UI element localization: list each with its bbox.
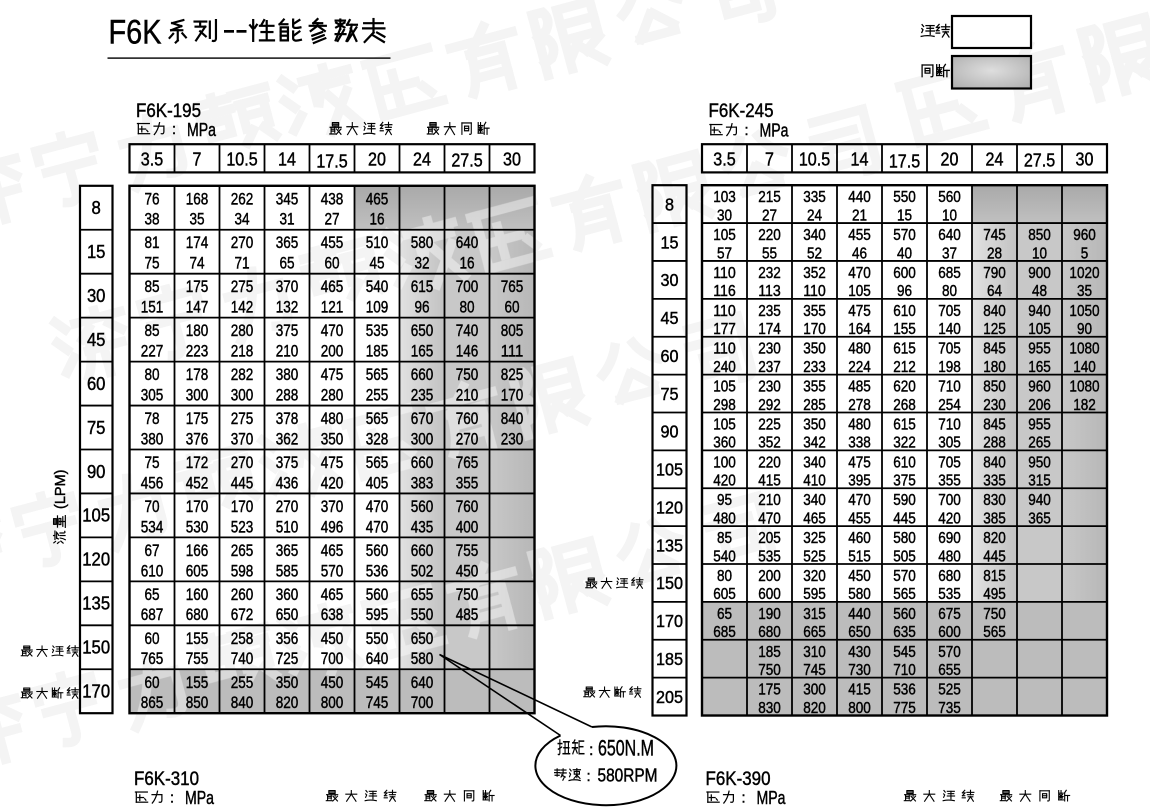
svg-text:380: 380 — [276, 366, 299, 384]
svg-text:370: 370 — [321, 498, 344, 516]
svg-text:35: 35 — [189, 211, 204, 229]
svg-text:90: 90 — [1077, 321, 1092, 338]
svg-text:120: 120 — [656, 498, 683, 518]
svg-text:710: 710 — [893, 662, 916, 679]
svg-text:175: 175 — [758, 682, 781, 699]
svg-text:121: 121 — [321, 299, 344, 317]
svg-text:605: 605 — [186, 562, 209, 580]
svg-text:450: 450 — [321, 674, 344, 692]
svg-text:350: 350 — [276, 674, 299, 692]
svg-text:71: 71 — [234, 255, 249, 273]
svg-text:570: 570 — [893, 227, 916, 244]
svg-text:755: 755 — [456, 542, 479, 560]
svg-text:170: 170 — [231, 498, 254, 516]
svg-text:270: 270 — [456, 430, 479, 448]
svg-text:640: 640 — [456, 234, 479, 252]
svg-text:550: 550 — [366, 630, 389, 648]
svg-text:580RPM: 580RPM — [598, 766, 658, 786]
svg-text:465: 465 — [366, 190, 389, 208]
svg-text:3.5: 3.5 — [713, 148, 735, 169]
svg-text:940: 940 — [1028, 492, 1051, 509]
svg-text:105: 105 — [713, 379, 736, 396]
svg-text:F6K-195: F6K-195 — [136, 100, 201, 122]
svg-text:465: 465 — [321, 586, 344, 604]
svg-text:665: 665 — [803, 624, 826, 641]
svg-text:48: 48 — [1032, 283, 1047, 300]
svg-text:356: 356 — [276, 630, 299, 648]
svg-text:170: 170 — [501, 387, 524, 405]
svg-text:1050: 1050 — [1069, 303, 1099, 320]
svg-text:7: 7 — [765, 148, 774, 169]
svg-text:370: 370 — [276, 278, 299, 296]
svg-text:438: 438 — [321, 190, 344, 208]
svg-text:210: 210 — [758, 492, 781, 509]
svg-text:5: 5 — [1081, 245, 1089, 262]
svg-text:375: 375 — [276, 454, 299, 472]
svg-text:322: 322 — [893, 435, 916, 452]
svg-text:95: 95 — [717, 492, 732, 509]
svg-text:27: 27 — [762, 207, 777, 224]
svg-text:76: 76 — [144, 190, 159, 208]
svg-text:342: 342 — [803, 435, 826, 452]
svg-text:105: 105 — [713, 417, 736, 434]
svg-text:125: 125 — [983, 321, 1006, 338]
svg-text:34: 34 — [234, 211, 249, 229]
svg-text:28: 28 — [987, 245, 1002, 262]
svg-text:700: 700 — [938, 492, 961, 509]
svg-text:27: 27 — [324, 211, 339, 229]
svg-text:254: 254 — [938, 397, 961, 414]
svg-text:495: 495 — [983, 586, 1006, 603]
svg-text:17.5: 17.5 — [316, 150, 347, 171]
svg-text:705: 705 — [938, 341, 961, 358]
svg-text:328: 328 — [366, 430, 389, 448]
svg-text:220: 220 — [758, 227, 781, 244]
svg-text:30: 30 — [87, 286, 106, 306]
svg-text:705: 705 — [938, 454, 961, 471]
svg-text:60: 60 — [504, 299, 519, 317]
svg-text:845: 845 — [983, 417, 1006, 434]
svg-text:350: 350 — [803, 341, 826, 358]
svg-text:113: 113 — [758, 283, 781, 300]
svg-text:30: 30 — [661, 270, 679, 290]
svg-text:80: 80 — [942, 283, 957, 300]
svg-text:MPa: MPa — [185, 788, 215, 808]
svg-text:638: 638 — [321, 606, 344, 624]
svg-text:515: 515 — [848, 548, 871, 565]
svg-text:30: 30 — [717, 207, 732, 224]
svg-text:288: 288 — [276, 387, 299, 405]
svg-text:565: 565 — [366, 454, 389, 472]
svg-text:200: 200 — [321, 343, 344, 361]
svg-text:55: 55 — [762, 245, 777, 262]
svg-text:960: 960 — [1028, 379, 1051, 396]
svg-text::: : — [587, 768, 591, 785]
svg-text:765: 765 — [456, 454, 479, 472]
svg-text:300: 300 — [411, 430, 434, 448]
svg-text:850: 850 — [186, 694, 209, 712]
svg-text:410: 410 — [803, 473, 826, 490]
svg-text:680: 680 — [758, 624, 781, 641]
svg-text:40: 40 — [897, 245, 912, 262]
svg-text:1020: 1020 — [1069, 265, 1099, 282]
svg-text:640: 640 — [938, 227, 961, 244]
svg-text:325: 325 — [803, 530, 826, 547]
svg-text:420: 420 — [713, 473, 736, 490]
svg-text:147: 147 — [186, 299, 209, 317]
svg-text:750: 750 — [758, 662, 781, 679]
svg-text:378: 378 — [276, 410, 299, 428]
svg-text:32: 32 — [414, 255, 429, 273]
svg-text:78: 78 — [144, 410, 159, 428]
svg-text:232: 232 — [758, 265, 781, 282]
svg-text:480: 480 — [321, 410, 344, 428]
svg-text:560: 560 — [411, 498, 434, 516]
svg-text:440: 440 — [848, 189, 871, 206]
svg-text:470: 470 — [848, 265, 871, 282]
svg-text:340: 340 — [803, 454, 826, 471]
svg-text::: : — [172, 122, 176, 138]
svg-text:110: 110 — [713, 303, 736, 320]
svg-text:1080: 1080 — [1069, 341, 1099, 358]
svg-text:365: 365 — [1028, 510, 1051, 527]
svg-text:172: 172 — [186, 454, 209, 472]
svg-text:830: 830 — [983, 492, 1006, 509]
svg-text:672: 672 — [231, 606, 254, 624]
svg-text:820: 820 — [276, 694, 299, 712]
svg-text:340: 340 — [803, 492, 826, 509]
svg-text:615: 615 — [893, 341, 916, 358]
svg-text:280: 280 — [321, 387, 344, 405]
svg-text:760: 760 — [456, 498, 479, 516]
svg-text:750: 750 — [456, 586, 479, 604]
svg-text:475: 475 — [848, 454, 871, 471]
svg-text:400: 400 — [456, 518, 479, 536]
svg-text:815: 815 — [983, 568, 1006, 585]
svg-text:27.5: 27.5 — [1024, 150, 1055, 171]
svg-text:96: 96 — [897, 283, 912, 300]
svg-text:502: 502 — [411, 562, 434, 580]
svg-text:15: 15 — [661, 232, 679, 252]
svg-text:24: 24 — [413, 148, 431, 169]
svg-text:565: 565 — [983, 624, 1006, 641]
svg-text:320: 320 — [803, 568, 826, 585]
svg-text:60: 60 — [87, 374, 106, 394]
svg-text:352: 352 — [803, 265, 826, 282]
svg-text:210: 210 — [456, 387, 479, 405]
svg-text:45: 45 — [87, 330, 106, 350]
svg-text:535: 535 — [758, 548, 781, 565]
svg-text:362: 362 — [276, 430, 299, 448]
svg-text:206: 206 — [1028, 397, 1051, 414]
svg-text:380: 380 — [141, 430, 164, 448]
svg-text:38: 38 — [144, 211, 159, 229]
svg-text:470: 470 — [848, 492, 871, 509]
svg-text:355: 355 — [938, 473, 961, 490]
svg-text:200: 200 — [758, 568, 781, 585]
svg-text:300: 300 — [803, 682, 826, 699]
svg-text:900: 900 — [1028, 265, 1051, 282]
svg-text:840: 840 — [231, 694, 254, 712]
svg-text:212: 212 — [893, 359, 916, 376]
svg-text:950: 950 — [1028, 454, 1051, 471]
svg-text:85: 85 — [717, 530, 732, 547]
svg-text:80: 80 — [144, 366, 159, 384]
svg-text:496: 496 — [321, 518, 344, 536]
svg-text:37: 37 — [942, 245, 957, 262]
svg-text:536: 536 — [893, 682, 916, 699]
svg-text:345: 345 — [276, 190, 299, 208]
svg-text:830: 830 — [758, 700, 781, 717]
svg-text:275: 275 — [231, 410, 254, 428]
svg-text:580: 580 — [848, 586, 871, 603]
svg-text:MPa: MPa — [757, 788, 787, 808]
svg-text:90: 90 — [87, 462, 106, 482]
svg-text:230: 230 — [501, 430, 524, 448]
svg-text:475: 475 — [321, 366, 344, 384]
svg-text:605: 605 — [713, 586, 736, 603]
svg-text:420: 420 — [321, 474, 344, 492]
svg-text:105: 105 — [82, 506, 110, 526]
svg-text:420: 420 — [938, 510, 961, 527]
svg-text:680: 680 — [186, 606, 209, 624]
svg-text:580: 580 — [411, 234, 434, 252]
svg-text:620: 620 — [893, 379, 916, 396]
svg-text:840: 840 — [983, 454, 1006, 471]
svg-text:745: 745 — [983, 227, 1006, 244]
svg-text:180: 180 — [186, 322, 209, 340]
svg-text:180: 180 — [983, 359, 1006, 376]
svg-text:8: 8 — [665, 194, 674, 214]
svg-text:24: 24 — [807, 207, 822, 224]
svg-text:710: 710 — [938, 379, 961, 396]
svg-text:385: 385 — [983, 510, 1006, 527]
svg-text:298: 298 — [713, 397, 736, 414]
svg-text:24: 24 — [986, 148, 1004, 169]
svg-text:525: 525 — [803, 548, 826, 565]
svg-text:355: 355 — [803, 379, 826, 396]
svg-text:225: 225 — [758, 417, 781, 434]
svg-text:570: 570 — [938, 644, 961, 661]
svg-text:166: 166 — [186, 542, 209, 560]
svg-text:F6K: F6K — [109, 14, 162, 52]
svg-text:700: 700 — [321, 650, 344, 668]
svg-text:700: 700 — [411, 694, 434, 712]
svg-text::: : — [170, 791, 174, 807]
svg-text:170: 170 — [656, 611, 683, 631]
svg-text:480: 480 — [848, 341, 871, 358]
svg-text:740: 740 — [456, 322, 479, 340]
svg-text:750: 750 — [456, 366, 479, 384]
svg-text:65: 65 — [144, 586, 159, 604]
svg-text:475: 475 — [321, 454, 344, 472]
svg-text:405: 405 — [366, 474, 389, 492]
svg-text:352: 352 — [758, 435, 781, 452]
svg-text:510: 510 — [366, 234, 389, 252]
svg-text:735: 735 — [938, 700, 961, 717]
svg-text:160: 160 — [186, 586, 209, 604]
svg-text:198: 198 — [938, 359, 961, 376]
svg-text:745: 745 — [366, 694, 389, 712]
svg-text:565: 565 — [366, 366, 389, 384]
svg-text:265: 265 — [231, 542, 254, 560]
svg-text:60: 60 — [324, 255, 339, 273]
svg-text:800: 800 — [848, 700, 871, 717]
svg-text:255: 255 — [366, 387, 389, 405]
svg-text:230: 230 — [758, 341, 781, 358]
svg-text:465: 465 — [321, 278, 344, 296]
svg-text:185: 185 — [366, 343, 389, 361]
svg-text:223: 223 — [186, 343, 209, 361]
svg-text:288: 288 — [983, 435, 1006, 452]
svg-text:660: 660 — [411, 542, 434, 560]
svg-text:675: 675 — [938, 606, 961, 623]
svg-text:705: 705 — [938, 303, 961, 320]
svg-text:440: 440 — [848, 606, 871, 623]
svg-text:111: 111 — [501, 343, 524, 361]
svg-text:340: 340 — [803, 227, 826, 244]
svg-text:670: 670 — [411, 410, 434, 428]
svg-text:650: 650 — [848, 624, 871, 641]
svg-text:10.5: 10.5 — [226, 148, 257, 169]
svg-text:680: 680 — [938, 568, 961, 585]
svg-text:227: 227 — [141, 343, 164, 361]
svg-text:168: 168 — [186, 190, 209, 208]
svg-text:455: 455 — [848, 227, 871, 244]
svg-text:595: 595 — [803, 586, 826, 603]
svg-text:740: 740 — [231, 650, 254, 668]
svg-text:545: 545 — [366, 674, 389, 692]
svg-text:7: 7 — [193, 148, 202, 169]
svg-text:445: 445 — [893, 510, 916, 527]
svg-text:376: 376 — [186, 430, 209, 448]
svg-text:530: 530 — [186, 518, 209, 536]
svg-text:F6K-245: F6K-245 — [709, 100, 774, 122]
svg-text:825: 825 — [501, 366, 524, 384]
svg-text:730: 730 — [848, 662, 871, 679]
svg-text:365: 365 — [276, 234, 299, 252]
svg-text:109: 109 — [366, 299, 389, 317]
svg-text:355: 355 — [456, 474, 479, 492]
svg-text:598: 598 — [231, 562, 254, 580]
svg-text:960: 960 — [1073, 227, 1096, 244]
svg-text:15: 15 — [87, 242, 106, 262]
svg-text:350: 350 — [321, 430, 344, 448]
svg-text:460: 460 — [848, 530, 871, 547]
svg-text:650: 650 — [276, 606, 299, 624]
svg-text:300: 300 — [186, 387, 209, 405]
svg-text:415: 415 — [758, 473, 781, 490]
svg-text:335: 335 — [983, 473, 1006, 490]
svg-text:110: 110 — [713, 265, 736, 282]
svg-text:MPa: MPa — [187, 120, 217, 140]
svg-text:275: 275 — [231, 278, 254, 296]
svg-text:745: 745 — [803, 662, 826, 679]
svg-text:(LPM): (LPM) — [53, 470, 69, 509]
svg-text:F6K-390: F6K-390 — [706, 768, 771, 790]
svg-text:360: 360 — [276, 586, 299, 604]
svg-text:85: 85 — [144, 278, 159, 296]
svg-text:580: 580 — [893, 530, 916, 547]
svg-text:90: 90 — [661, 422, 679, 442]
svg-text:650N.M: 650N.M — [598, 736, 654, 761]
svg-text:850: 850 — [1028, 227, 1051, 244]
svg-text:725: 725 — [276, 650, 299, 668]
svg-text:178: 178 — [186, 366, 209, 384]
svg-text:258: 258 — [231, 630, 254, 648]
svg-text:436: 436 — [276, 474, 299, 492]
svg-text:282: 282 — [231, 366, 254, 384]
svg-text:395: 395 — [848, 473, 871, 490]
svg-text:710: 710 — [938, 417, 961, 434]
svg-text:237: 237 — [758, 359, 781, 376]
svg-text:35: 35 — [1077, 283, 1092, 300]
svg-text:940: 940 — [1028, 303, 1051, 320]
svg-text:155: 155 — [186, 674, 209, 692]
svg-text:455: 455 — [321, 234, 344, 252]
svg-text:310: 310 — [803, 644, 826, 661]
svg-text:270: 270 — [231, 454, 254, 472]
svg-text:660: 660 — [411, 454, 434, 472]
svg-text:585: 585 — [276, 562, 299, 580]
svg-text:235: 235 — [758, 303, 781, 320]
svg-text:565: 565 — [366, 410, 389, 428]
svg-text:185: 185 — [758, 644, 781, 661]
svg-text:580: 580 — [411, 650, 434, 668]
svg-text:278: 278 — [848, 397, 871, 414]
svg-text:840: 840 — [501, 410, 524, 428]
svg-text:10: 10 — [942, 207, 957, 224]
svg-text:415: 415 — [848, 682, 871, 699]
svg-text::: : — [742, 791, 746, 807]
svg-text:845: 845 — [983, 341, 1006, 358]
svg-text:52: 52 — [807, 245, 822, 262]
svg-text:510: 510 — [276, 518, 299, 536]
svg-text:177: 177 — [713, 321, 736, 338]
svg-text:190: 190 — [758, 606, 781, 623]
svg-text:270: 270 — [276, 498, 299, 516]
svg-text:820: 820 — [803, 700, 826, 717]
svg-text:450: 450 — [321, 630, 344, 648]
svg-text:615: 615 — [411, 278, 434, 296]
svg-text:45: 45 — [661, 308, 679, 328]
svg-text:615: 615 — [893, 417, 916, 434]
svg-text:64: 64 — [987, 283, 1002, 300]
svg-text:765: 765 — [141, 650, 164, 668]
svg-text:3.5: 3.5 — [141, 148, 163, 169]
svg-text:142: 142 — [231, 299, 254, 317]
svg-text:505: 505 — [893, 548, 916, 565]
svg-text:570: 570 — [893, 568, 916, 585]
svg-text:233: 233 — [803, 359, 826, 376]
svg-text:805: 805 — [501, 322, 524, 340]
svg-text:230: 230 — [983, 397, 1006, 414]
svg-text:540: 540 — [366, 278, 389, 296]
svg-text:600: 600 — [893, 265, 916, 282]
svg-text:96: 96 — [414, 299, 429, 317]
svg-text:755: 755 — [186, 650, 209, 668]
svg-text:155: 155 — [186, 630, 209, 648]
svg-text:445: 445 — [983, 548, 1006, 565]
svg-text:17.5: 17.5 — [889, 150, 920, 171]
svg-text:305: 305 — [938, 435, 961, 452]
svg-text:470: 470 — [366, 498, 389, 516]
svg-text:F6K-310: F6K-310 — [134, 768, 199, 790]
svg-text:75: 75 — [661, 384, 679, 404]
svg-text:215: 215 — [758, 189, 781, 206]
svg-text:570: 570 — [321, 562, 344, 580]
svg-text:65: 65 — [717, 606, 732, 623]
